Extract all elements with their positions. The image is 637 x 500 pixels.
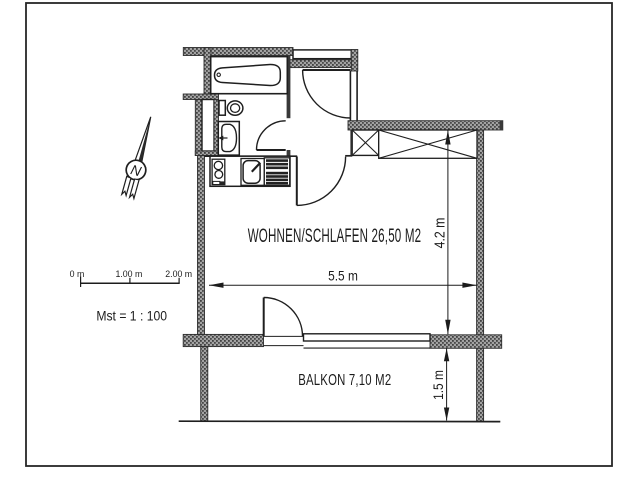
svg-text:1.00 m: 1.00 m bbox=[115, 269, 142, 279]
svg-text:2.00 m: 2.00 m bbox=[165, 269, 192, 279]
svg-text:WOHNEN/SCHLAFEN 26,50 M2: WOHNEN/SCHLAFEN 26,50 M2 bbox=[248, 226, 422, 247]
svg-text:Mst = 1 : 100: Mst = 1 : 100 bbox=[96, 308, 167, 324]
svg-text:BALKON 7,10 M2: BALKON 7,10 M2 bbox=[298, 370, 391, 388]
svg-text:0 m: 0 m bbox=[70, 269, 85, 279]
svg-text:4.2 m: 4.2 m bbox=[432, 218, 448, 249]
svg-text:5.5 m: 5.5 m bbox=[328, 268, 358, 284]
svg-text:1.5 m: 1.5 m bbox=[430, 370, 446, 400]
